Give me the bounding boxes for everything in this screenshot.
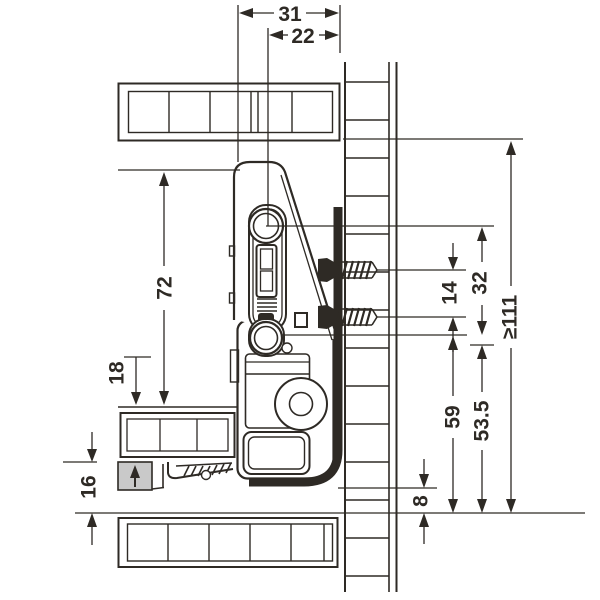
dimension-32: 32	[469, 227, 492, 335]
dim-label-59: 59	[442, 405, 465, 428]
adjustment-cam	[275, 378, 327, 430]
dimension-59: 59	[442, 336, 465, 513]
dimension-18: 18	[106, 357, 142, 405]
dim-label-min-111: ≥111	[499, 295, 522, 340]
bottom-latch-lever	[168, 462, 233, 480]
dim-label-53-5: 53.5	[471, 400, 494, 441]
dim-label-22: 22	[291, 25, 314, 48]
cabinet-bottom-panel	[119, 518, 338, 567]
dimension-22: 22	[269, 25, 339, 48]
dim-label-72: 72	[154, 276, 177, 299]
dim-label-8: 8	[410, 495, 433, 507]
euro-screw-top	[318, 258, 377, 282]
front-panel-rungs	[345, 82, 389, 576]
dimension-min-111: ≥111	[499, 141, 522, 513]
dim-label-16: 16	[78, 475, 101, 498]
technical-drawing: 31 22 72 18 16 14 32	[0, 0, 600, 600]
drawer-bottom-panel	[118, 407, 237, 457]
dimension-72: 72	[154, 172, 177, 405]
dimension-16: 16	[78, 432, 101, 545]
euro-screw-bottom	[318, 305, 377, 329]
drawer-bottom-front-edge	[118, 462, 164, 490]
dimension-31: 31	[239, 3, 339, 26]
dim-label-14: 14	[439, 281, 462, 305]
height-adjustment-slider	[257, 245, 278, 328]
dim-label-32: 32	[469, 271, 492, 294]
bracket-latch	[295, 313, 307, 327]
dimension-53-5: 53.5	[471, 345, 494, 513]
dimension-8: 8	[410, 459, 433, 544]
cabinet-top-rail	[119, 84, 340, 141]
dim-label-18: 18	[106, 361, 129, 385]
drawer-runner-cross-section: 31 22 72 18 16 14 32	[0, 0, 600, 600]
dim-label-31: 31	[278, 3, 302, 26]
